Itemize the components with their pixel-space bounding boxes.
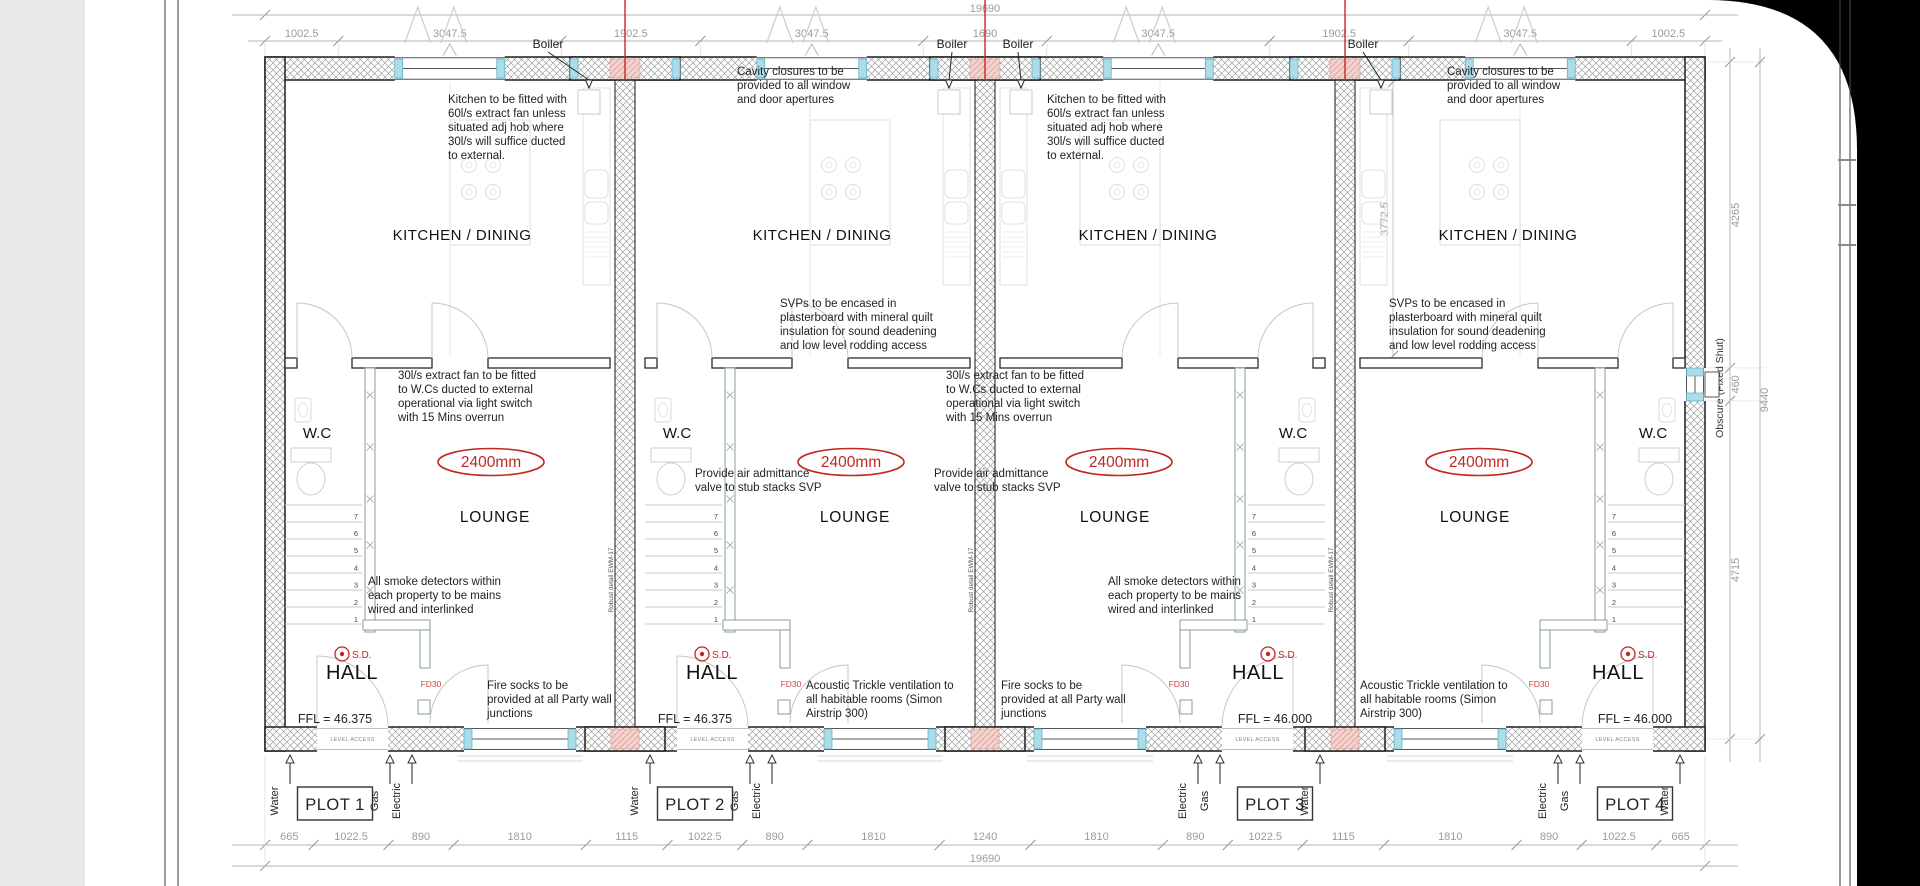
ffl-label: FFL = 46.000	[1238, 712, 1312, 726]
stair-number: 5	[714, 546, 718, 555]
dim-bottom-segment-label: 1810	[861, 831, 885, 843]
stair-number: 3	[354, 581, 358, 590]
room-label-wc: W.C	[1279, 425, 1307, 442]
annotation-wcfan-plot1: operational via light switch	[398, 398, 532, 410]
stair-number: 7	[1252, 512, 1256, 521]
internal-wall	[1360, 358, 1482, 368]
ceiling-height-label: 2400mm	[1089, 454, 1149, 471]
internal-wall	[285, 358, 297, 368]
party-wall-cavity-fill	[611, 729, 639, 749]
stair-number: 3	[1252, 581, 1256, 590]
cavity-closer	[824, 729, 832, 749]
annotation-cavity-plot4: Cavity closures to be	[1447, 66, 1554, 78]
dim-bottom-segment-label: 890	[1540, 831, 1558, 843]
smoke-detector-label: S.D.	[352, 650, 371, 661]
cavity-closer	[1138, 729, 1146, 749]
stair-number: 6	[1252, 529, 1256, 538]
service-label: Gas	[1559, 790, 1571, 811]
annotation-kitchen-fan-plot3: 60l/s extract fan unless	[1047, 108, 1165, 120]
hall-stud	[1540, 700, 1552, 714]
ceiling-height-label: 2400mm	[821, 454, 881, 471]
exterior-wall-left	[265, 57, 285, 751]
stair-number: 5	[1252, 546, 1256, 555]
dim-top-segment-label: 1002.5	[285, 28, 319, 40]
stair-screen	[723, 620, 790, 630]
level-access-label: LEVEL ACCESS	[690, 737, 734, 743]
room-label-hall: HALL	[1232, 662, 1284, 684]
annotation-cavity-plot2: provided to all window	[737, 80, 851, 92]
plot-label: PLOT 1	[305, 796, 365, 814]
robust-detail-label: Robust detail EWM-17	[968, 547, 975, 612]
dim-right-segment-label: 460	[1730, 375, 1742, 393]
boiler-unit	[1010, 90, 1032, 114]
dim-bottom-total-label: 19690	[970, 853, 1001, 865]
internal-wall	[645, 358, 657, 368]
dim-bottom-segment-label: 890	[412, 831, 430, 843]
annotation-kitchen-fan-plot1: 60l/s extract fan unless	[448, 108, 566, 120]
dim-bottom-segment-label: 1022.5	[1248, 831, 1282, 843]
room-label-kitchen: KITCHEN / DINING	[1079, 227, 1218, 244]
annotation-smoke-plot3: each property to be mains	[1108, 590, 1241, 602]
stair-number: 1	[1252, 615, 1256, 624]
room-label-wc: W.C	[1639, 425, 1667, 442]
cavity-closer	[859, 59, 867, 78]
annotation-kitchen-fan-plot3: situated adj hob where	[1047, 122, 1163, 134]
boiler-label: Boiler	[533, 37, 564, 51]
service-label: Gas	[729, 790, 741, 811]
room-label-hall: HALL	[686, 662, 738, 684]
dim-bottom-segment-label: 665	[1672, 831, 1690, 843]
annotation-kitchen-fan-plot1: Kitchen to be fitted with	[448, 94, 567, 106]
service-label: Electric	[1537, 782, 1549, 819]
cavity-closer	[497, 59, 505, 78]
stair-number: 5	[354, 546, 358, 555]
cavity-closer	[1392, 59, 1400, 78]
cavity-closer	[1032, 59, 1040, 78]
annotation-smoke-plot1: All smoke detectors within	[368, 576, 501, 588]
cavity-closer	[1034, 729, 1042, 749]
internal-wall	[352, 358, 432, 368]
plot-label: PLOT 2	[665, 796, 725, 814]
stair-number: 3	[1612, 581, 1616, 590]
annotation-wcfan-plot1: 30l/s extract fan to be fitted	[398, 370, 536, 382]
annotation-aav-plot2: Provide air admittance	[695, 468, 809, 480]
cavity-closer	[1290, 59, 1298, 78]
stair-number: 1	[1612, 615, 1616, 624]
dim-bottom-segment-label: 1115	[615, 831, 638, 843]
service-label: Gas	[369, 790, 381, 811]
annotation-wcfan-plot3: with 15 Mins overrun	[945, 412, 1052, 424]
dim-right-segment-label: 4265	[1730, 203, 1742, 227]
stair-screen	[780, 630, 790, 668]
dim-top-segment-label: 1002.5	[1652, 28, 1686, 40]
dim-bottom-segment-label: 1810	[507, 831, 531, 843]
hall-stud	[778, 700, 790, 714]
service-label: Electric	[751, 782, 763, 819]
dim-bottom-segment-label: 1115	[1332, 831, 1355, 843]
annotation-smoke-plot1: each property to be mains	[368, 590, 501, 602]
floorplan-canvas[interactable]: 196901002.53047.51902.53047.516903047.51…	[0, 0, 1920, 886]
stair-number: 4	[354, 563, 358, 572]
internal-wall	[1673, 358, 1685, 368]
dim-bottom-segment-label: 665	[280, 831, 298, 843]
cavity-closer	[1687, 393, 1704, 401]
cavity-closer	[930, 59, 938, 78]
stair-number: 4	[1612, 563, 1616, 572]
stair-number: 2	[1252, 598, 1256, 607]
annotation-acoustic-plot2: Airstrip 300)	[806, 708, 868, 720]
annotation-svp-plot2: and low level rodding access	[780, 340, 927, 352]
dim-top-segment-label: 1902.5	[614, 28, 648, 40]
party-wall	[1335, 80, 1355, 727]
cavity-closer	[570, 59, 578, 78]
fd30-label: FD30	[1169, 679, 1190, 689]
dim-bottom-segment-label: 890	[766, 831, 784, 843]
smoke-detector-label: S.D.	[1638, 650, 1657, 661]
wc-stair-wall	[1595, 368, 1605, 632]
smoke-detector-icon	[1626, 652, 1630, 656]
annotation-wcfan-plot1: with 15 Mins overrun	[397, 412, 504, 424]
annotation-cavity-plot4: provided to all window	[1447, 80, 1561, 92]
ceiling-height-label: 2400mm	[461, 454, 521, 471]
annotation-kitchen-fan-plot1: to external.	[448, 150, 505, 162]
annotation-wcfan-plot3: to W.Cs ducted to external	[946, 384, 1081, 396]
annotation-svp-plot4: plasterboard with mineral quilt	[1389, 312, 1543, 324]
robust-detail-label: Robust detail EWM-17	[608, 547, 615, 612]
cavity-closer	[1394, 729, 1402, 749]
service-label: Water	[629, 786, 641, 815]
annotation-firesocks-plot3: provided at all Party wall	[1001, 694, 1126, 706]
stair-number: 7	[714, 512, 718, 521]
service-label: Water	[1299, 786, 1311, 815]
internal-wall	[1178, 358, 1258, 368]
dim-bottom-segment-label: 1810	[1438, 831, 1462, 843]
exterior-wall-right	[1685, 57, 1705, 751]
annotation-firesocks-plot3: junctions	[1000, 708, 1047, 720]
annotation-firesocks-plot1: junctions	[486, 708, 533, 720]
annotation-cavity-plot2: Cavity closures to be	[737, 66, 844, 78]
party-wall-cavity-fill	[1331, 729, 1359, 749]
stair-number: 4	[714, 563, 718, 572]
annotation-firesocks-plot3: Fire socks to be	[1001, 680, 1082, 692]
ceiling-height-label: 2400mm	[1449, 454, 1509, 471]
cavity-closer	[928, 729, 936, 749]
service-label: Gas	[1199, 790, 1211, 811]
annotation-acoustic-plot4: all habitable rooms (Simon	[1360, 694, 1496, 706]
cavity-closer	[1687, 368, 1704, 376]
stair-screen	[1540, 620, 1607, 630]
room-label-kitchen: KITCHEN / DINING	[393, 227, 532, 244]
stair-number: 4	[1252, 563, 1256, 572]
annotation-svp-plot4: insulation for sound deadening	[1389, 326, 1546, 338]
room-label-lounge: LOUNGE	[460, 509, 530, 526]
annotation-wcfan-plot3: 30l/s extract fan to be fitted	[946, 370, 1084, 382]
stair-number: 2	[714, 598, 718, 607]
boiler-unit	[1370, 90, 1392, 114]
annotation-smoke-plot1: wired and interlinked	[367, 604, 473, 616]
room-label-hall: HALL	[326, 662, 378, 684]
annotation-svp-plot2: insulation for sound deadening	[780, 326, 937, 338]
dim-bottom-segment-label: 890	[1186, 831, 1204, 843]
annotation-wcfan-plot1: to W.Cs ducted to external	[398, 384, 533, 396]
left-panel	[0, 0, 85, 886]
service-label: Water	[269, 786, 281, 815]
dim-bottom-segment-label: 1810	[1084, 831, 1108, 843]
cavity-closer	[395, 59, 403, 78]
room-label-wc: W.C	[663, 425, 691, 442]
stair-number: 6	[1612, 529, 1616, 538]
obscure-window-frame	[1705, 372, 1719, 397]
internal-wall	[1000, 358, 1122, 368]
annotation-smoke-plot3: wired and interlinked	[1107, 604, 1213, 616]
stair-screen	[420, 630, 430, 668]
annotation-acoustic-plot2: Acoustic Trickle ventilation to	[806, 680, 954, 692]
stair-screen	[1180, 630, 1190, 668]
stair-number: 2	[1612, 598, 1616, 607]
annotation-svp-plot4: SVPs to be encased in	[1389, 298, 1505, 310]
annotation-acoustic-plot4: Airstrip 300)	[1360, 708, 1422, 720]
cavity-closer	[1567, 59, 1575, 78]
dim-bottom-segment-label: 1022.5	[688, 831, 722, 843]
ffl-label: FFL = 46.375	[658, 712, 732, 726]
ffl-label: FFL = 46.000	[1598, 712, 1672, 726]
party-wall	[615, 80, 635, 727]
dim-bottom-segment-label: 1022.5	[1602, 831, 1636, 843]
hall-stud	[1180, 700, 1192, 714]
room-label-lounge: LOUNGE	[820, 509, 890, 526]
dim-right-total-label: 9440	[1759, 388, 1771, 412]
level-access-label: LEVEL ACCESS	[330, 737, 374, 743]
annotation-svp-plot4: and low level rodding access	[1389, 340, 1536, 352]
plot-label: PLOT 3	[1245, 796, 1305, 814]
stair-number: 1	[354, 615, 358, 624]
smoke-detector-label: S.D.	[712, 650, 731, 661]
boiler-label: Boiler	[1348, 37, 1379, 51]
annotation-kitchen-fan-plot3: to external.	[1047, 150, 1104, 162]
annotation-aav-plot3: valve to stub stacks SVP	[934, 482, 1061, 494]
fd30-label: FD30	[421, 679, 442, 689]
annotation-acoustic-plot4: Acoustic Trickle ventilation to	[1360, 680, 1508, 692]
stair-number: 3	[714, 581, 718, 590]
room-label-kitchen: KITCHEN / DINING	[1439, 227, 1578, 244]
annotation-kitchen-fan-plot3: 30l/s will suffice ducted	[1047, 136, 1164, 148]
annotation-kitchen-fan-plot1: situated adj hob where	[448, 122, 564, 134]
cavity-closer	[464, 729, 472, 749]
dim-bottom-segment-label: 1022.5	[334, 831, 368, 843]
smoke-detector-icon	[340, 652, 344, 656]
internal-wall	[1538, 358, 1618, 368]
service-label: Electric	[1177, 782, 1189, 819]
internal-wall	[1313, 358, 1325, 368]
annotation-smoke-plot3: All smoke detectors within	[1108, 576, 1241, 588]
drawing-page	[85, 0, 1857, 886]
fd30-label: FD30	[1529, 679, 1550, 689]
hall-stud	[418, 700, 430, 714]
stair-screen	[1540, 630, 1550, 668]
stair-number: 7	[1612, 512, 1616, 521]
room-label-lounge: LOUNGE	[1080, 509, 1150, 526]
annotation-firesocks-plot1: provided at all Party wall	[487, 694, 612, 706]
stair-screen	[1180, 620, 1247, 630]
stair-number: 2	[354, 598, 358, 607]
service-label: Electric	[391, 782, 403, 819]
annotation-cavity-plot4: and door apertures	[1447, 94, 1544, 106]
internal-wall	[848, 358, 970, 368]
annotation-acoustic-plot2: all habitable rooms (Simon	[806, 694, 942, 706]
internal-wall	[488, 358, 610, 368]
boiler-unit	[578, 90, 600, 114]
dim-right-segment-label: 4715	[1730, 558, 1742, 582]
stair-number: 6	[354, 529, 358, 538]
stair-number: 5	[1612, 546, 1616, 555]
annotation-svp-plot2: plasterboard with mineral quilt	[780, 312, 934, 324]
annotation-firesocks-plot1: Fire socks to be	[487, 680, 568, 692]
stair-number: 1	[714, 615, 718, 624]
boiler-label: Boiler	[937, 37, 968, 51]
annotation-aav-plot2: valve to stub stacks SVP	[695, 482, 822, 494]
stair-number: 7	[354, 512, 358, 521]
cavity-closer	[568, 729, 576, 749]
cavity-closer	[672, 59, 680, 78]
annotation-wcfan-plot3: operational via light switch	[946, 398, 1080, 410]
level-access-label: LEVEL ACCESS	[1235, 737, 1279, 743]
party-wall-cavity-fill	[971, 729, 999, 749]
room-label-hall: HALL	[1592, 662, 1644, 684]
wc-stair-wall	[725, 368, 735, 632]
plot-label: PLOT 4	[1605, 796, 1665, 814]
room-label-wc: W.C	[303, 425, 331, 442]
internal-wall	[712, 358, 792, 368]
dim-bottom-segment-label: 1240	[973, 831, 997, 843]
service-label: Water	[1659, 786, 1671, 815]
drawing-viewport[interactable]: 196901002.53047.51902.53047.516903047.51…	[0, 0, 1920, 886]
annotation-aav-plot3: Provide air admittance	[934, 468, 1048, 480]
annotation-svp-plot2: SVPs to be encased in	[780, 298, 896, 310]
smoke-detector-icon	[1266, 652, 1270, 656]
level-access-label: LEVEL ACCESS	[1595, 737, 1639, 743]
cavity-closer	[1205, 59, 1213, 78]
stair-screen	[363, 620, 430, 630]
boiler-label: Boiler	[1003, 37, 1034, 51]
annotation-kitchen-fan-plot1: 30l/s will suffice ducted	[448, 136, 565, 148]
room-label-lounge: LOUNGE	[1440, 509, 1510, 526]
cavity-closer	[1103, 59, 1111, 78]
stair-number: 6	[714, 529, 718, 538]
fd30-label: FD30	[781, 679, 802, 689]
robust-detail-label: Robust detail EWM-17	[1328, 547, 1335, 612]
cavity-closer	[1498, 729, 1506, 749]
smoke-detector-label: S.D.	[1278, 650, 1297, 661]
annotation-cavity-plot2: and door apertures	[737, 94, 834, 106]
ffl-label: FFL = 46.375	[298, 712, 372, 726]
boiler-unit	[938, 90, 960, 114]
smoke-detector-icon	[700, 652, 704, 656]
room-label-kitchen: KITCHEN / DINING	[753, 227, 892, 244]
annotation-kitchen-fan-plot3: Kitchen to be fitted with	[1047, 94, 1166, 106]
